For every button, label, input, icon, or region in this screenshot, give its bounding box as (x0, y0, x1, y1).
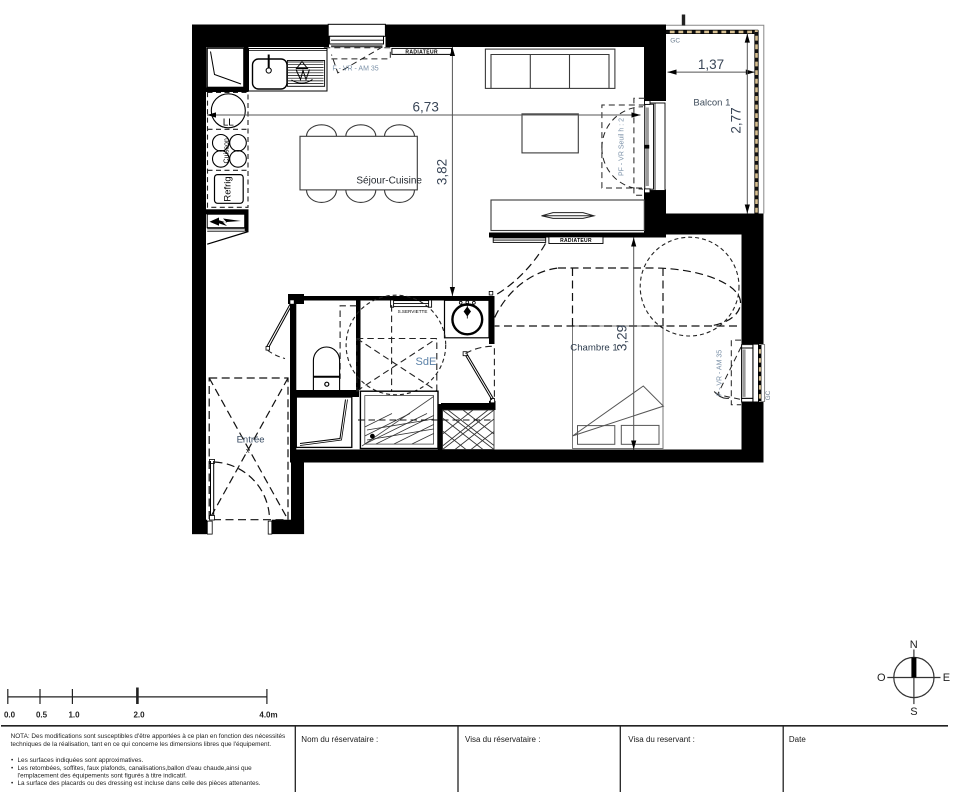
svg-text:6,73: 6,73 (413, 100, 439, 115)
svg-text:4.0m: 4.0m (259, 711, 277, 720)
svg-text:Visa du réservataire :: Visa du réservataire : (465, 735, 540, 744)
svg-text:Les surfaces indiquées sont ap: Les surfaces indiquées sont approximativ… (18, 757, 144, 764)
svg-text:Nom du réservataire :: Nom du réservataire : (301, 735, 378, 744)
svg-text:Séjour-Cuisine: Séjour-Cuisine (356, 175, 422, 186)
svg-text:Chambre 1: Chambre 1 (570, 343, 617, 354)
svg-text:NOTA: Des modifications sont s: NOTA: Des modifications sont susceptible… (11, 733, 286, 740)
svg-text:RADIATEUR: RADIATEUR (560, 238, 592, 244)
svg-text:3,82: 3,82 (435, 159, 450, 185)
svg-text:F - VR - AM 35: F - VR - AM 35 (332, 65, 378, 72)
svg-text:SdE: SdE (416, 356, 437, 368)
svg-text:•: • (11, 765, 13, 772)
svg-text:Entrée: Entrée (237, 435, 265, 446)
svg-text:x: x (246, 446, 250, 455)
svg-text:Visa du reservant :: Visa du reservant : (628, 735, 695, 744)
svg-text:O: O (877, 672, 886, 684)
svg-text:techniques de la réalisation,: techniques de la réalisation, tant en ce… (11, 741, 272, 748)
svg-text:Refrig: Refrig (223, 176, 234, 201)
svg-text:GC: GC (670, 37, 680, 44)
svg-text:0.5: 0.5 (36, 711, 48, 720)
svg-text:S.SERVIETTE: S.SERVIETTE (398, 309, 428, 314)
svg-text:La surface des placards ou des: La surface des placards ou des dressing … (18, 780, 261, 787)
svg-text:S: S (910, 706, 917, 718)
svg-text:l'emplacement des équipements: l'emplacement des équipements sont figur… (18, 772, 187, 779)
svg-text:2.0: 2.0 (133, 711, 145, 720)
svg-text:1.0: 1.0 (68, 711, 80, 720)
svg-text:Cuisson: Cuisson (224, 138, 231, 163)
svg-text:PF - VR Seuil h : 2: PF - VR Seuil h : 2 (619, 118, 626, 176)
svg-text:GC: GC (765, 390, 772, 400)
svg-text:LL: LL (223, 118, 235, 129)
svg-text:E: E (943, 672, 950, 684)
svg-text:1,37: 1,37 (698, 57, 724, 72)
svg-text:•: • (11, 757, 13, 764)
svg-text:•: • (11, 780, 13, 787)
svg-text:F - VR - AM 35: F - VR - AM 35 (717, 350, 724, 396)
svg-text:RADIATEUR: RADIATEUR (405, 49, 438, 55)
svg-text:3,29: 3,29 (615, 325, 630, 351)
svg-text:0.0: 0.0 (4, 711, 16, 720)
svg-text:N: N (910, 639, 918, 651)
svg-text:2,77: 2,77 (728, 107, 743, 133)
svg-text:Balcon 1: Balcon 1 (693, 98, 730, 109)
svg-text:Date: Date (789, 735, 806, 744)
svg-text:Les retombées, soffites, faux: Les retombées, soffites, faux plafonds, … (18, 765, 253, 772)
